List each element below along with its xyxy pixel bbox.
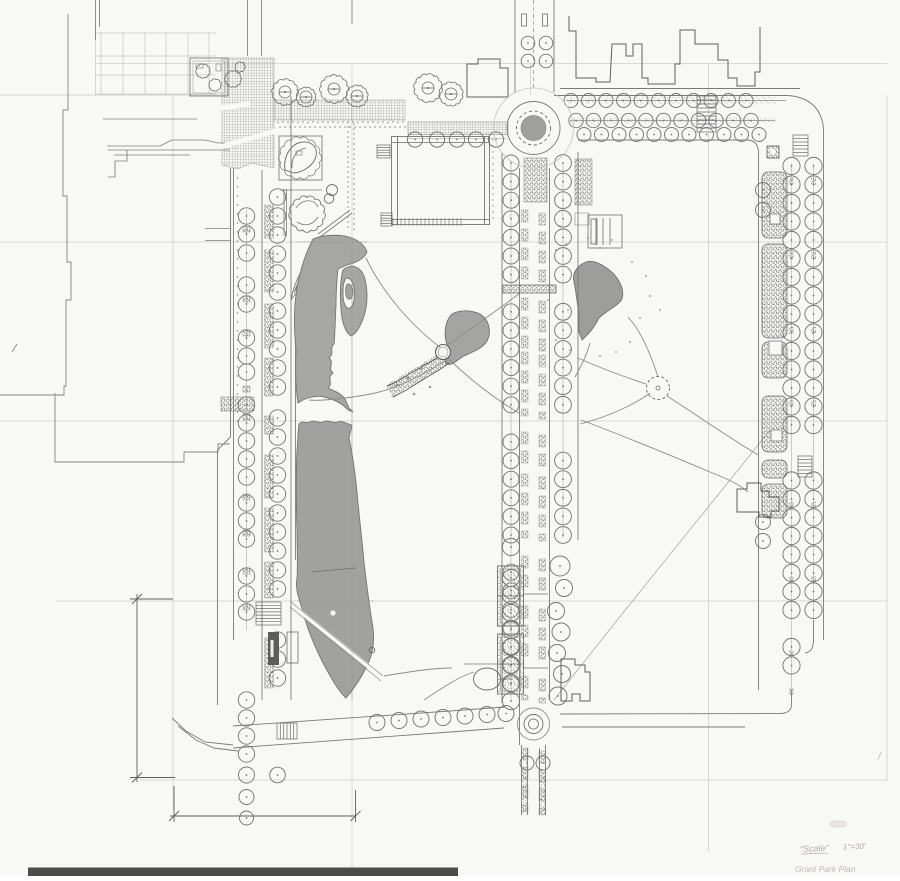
svg-text:“Scale”: “Scale” [800,843,830,854]
svg-text:1″=30′: 1″=30′ [843,842,866,852]
svg-text:Grant Park Plan: Grant Park Plan [795,864,856,874]
